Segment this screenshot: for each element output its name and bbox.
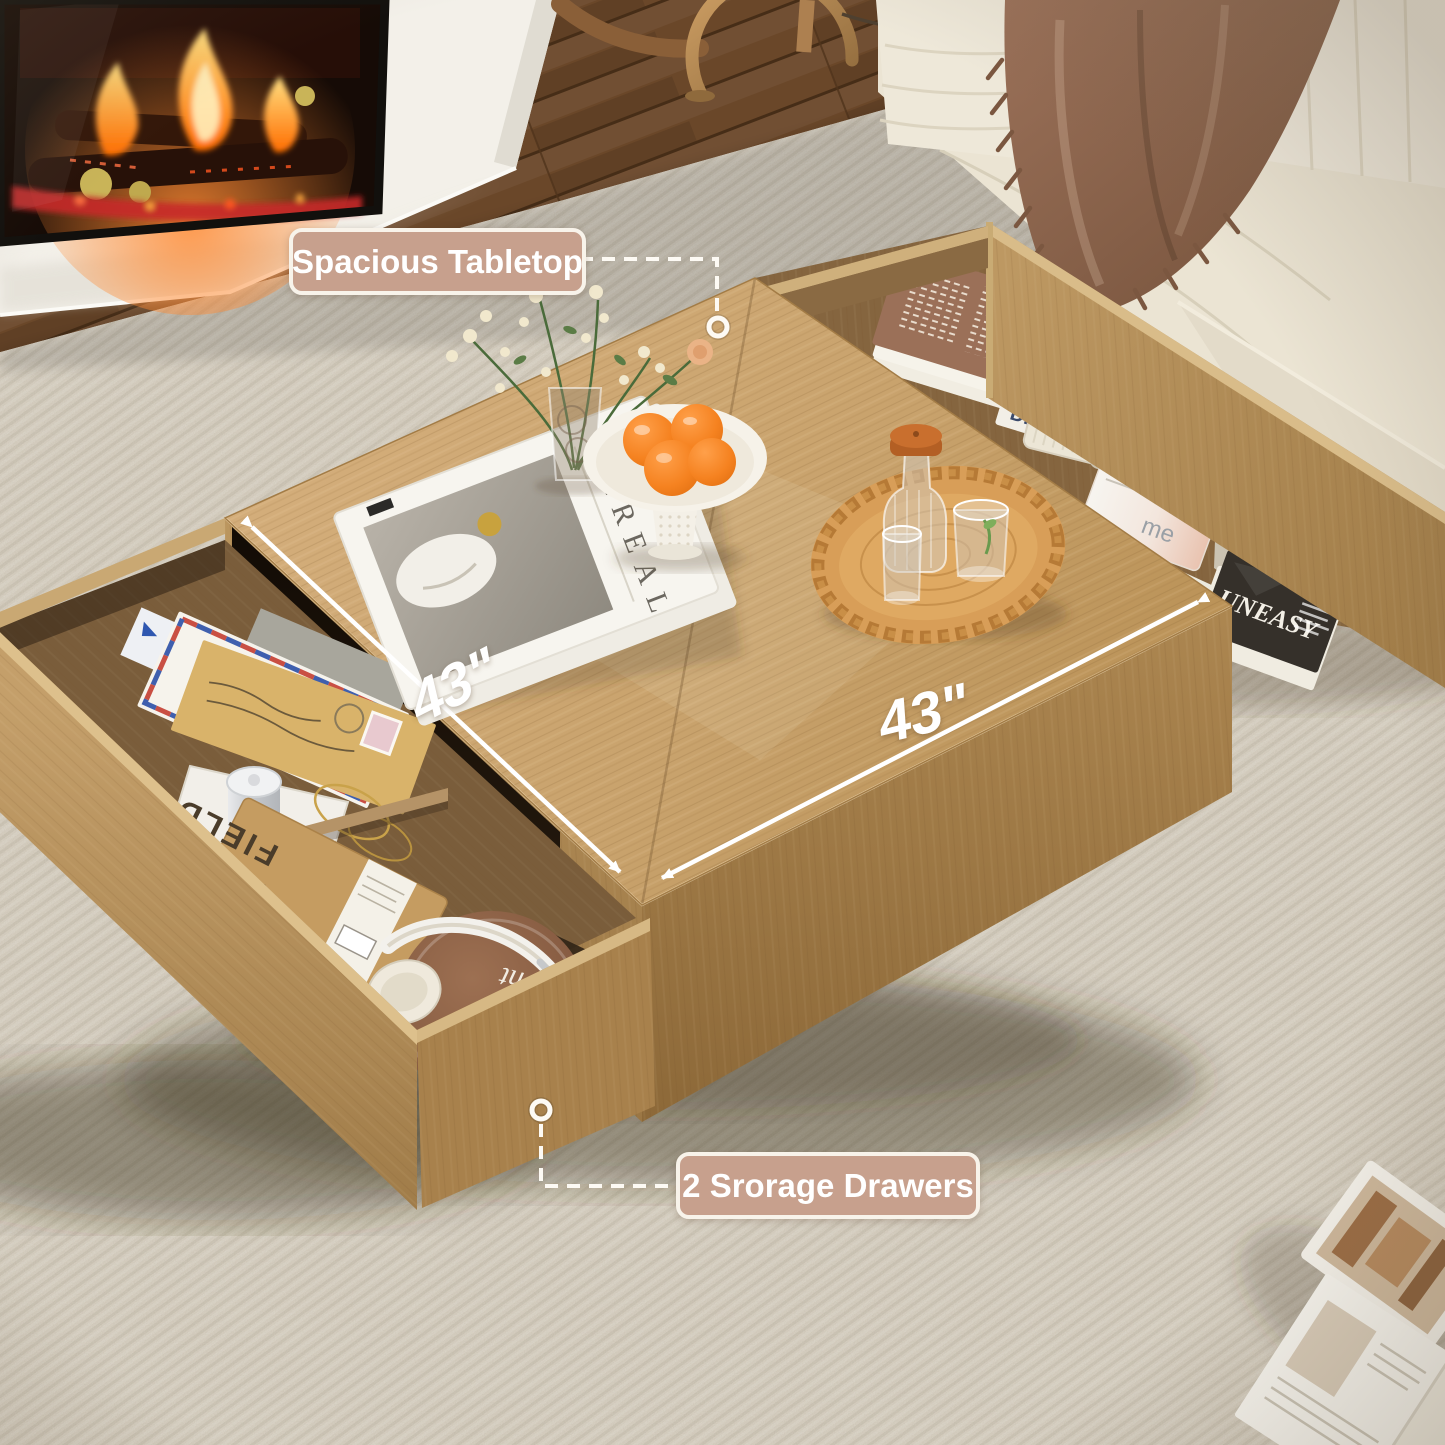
tabletop-callout-label: Spacious Tabletop bbox=[292, 243, 583, 281]
tabletop-callout: Spacious Tabletop bbox=[289, 228, 586, 295]
vignette bbox=[0, 0, 1445, 1445]
drawers-callout-label: 2 Srorage Drawers bbox=[682, 1167, 974, 1205]
product-image: DEN me bbox=[0, 0, 1445, 1445]
scene-illustration: DEN me bbox=[0, 0, 1445, 1445]
drawers-callout: 2 Srorage Drawers bbox=[676, 1152, 980, 1219]
